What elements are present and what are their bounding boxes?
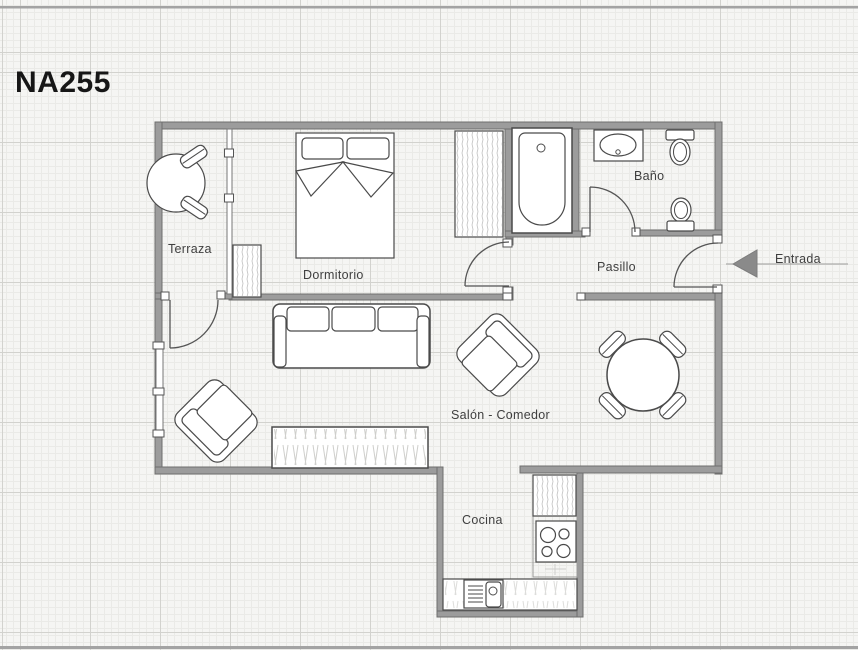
room-label-terraza: Terraza [168,242,212,256]
fridge-symbol [533,475,576,516]
entry-door-arc [674,243,718,287]
bathroom-door-arc [590,187,635,232]
kitchen-sink-symbol [464,580,503,608]
kitchen-bottom-counter [443,579,577,610]
dining-table-symbol [597,329,689,422]
terrace-door-arc [170,300,218,348]
room-label-dormitorio: Dormitorio [303,268,364,282]
sofa-symbol [273,304,430,368]
room-label-entrada: Entrada [775,252,821,266]
rug-symbol [272,427,428,468]
paper-top-rule [0,6,858,9]
bathtub-symbol [512,128,572,233]
armchair-symbol-left [171,375,262,466]
wardrobe-symbol [455,131,503,237]
stove-symbol [536,521,576,562]
bed-symbol [296,133,394,258]
bedroom-door-arc [465,242,509,286]
room-label-bano: Baño [634,169,664,183]
armchair-symbol-right [452,310,543,401]
toilet-symbol-bottom [667,198,694,231]
floorplan-drawing [0,0,858,650]
window-partition [225,129,234,294]
bathroom-sink-symbol [594,130,643,161]
toilet-symbol-top [666,130,694,165]
paper-bottom-rule [0,646,858,649]
room-label-salon: Salón - Comedor [451,408,550,422]
floorplan-page: NA255 Terraza Dormitorio Baño Pasillo Sa… [0,0,858,650]
room-label-cocina: Cocina [462,513,503,527]
dresser-symbol [233,245,261,297]
page-title: NA255 [15,66,111,100]
room-label-pasillo: Pasillo [597,260,636,274]
